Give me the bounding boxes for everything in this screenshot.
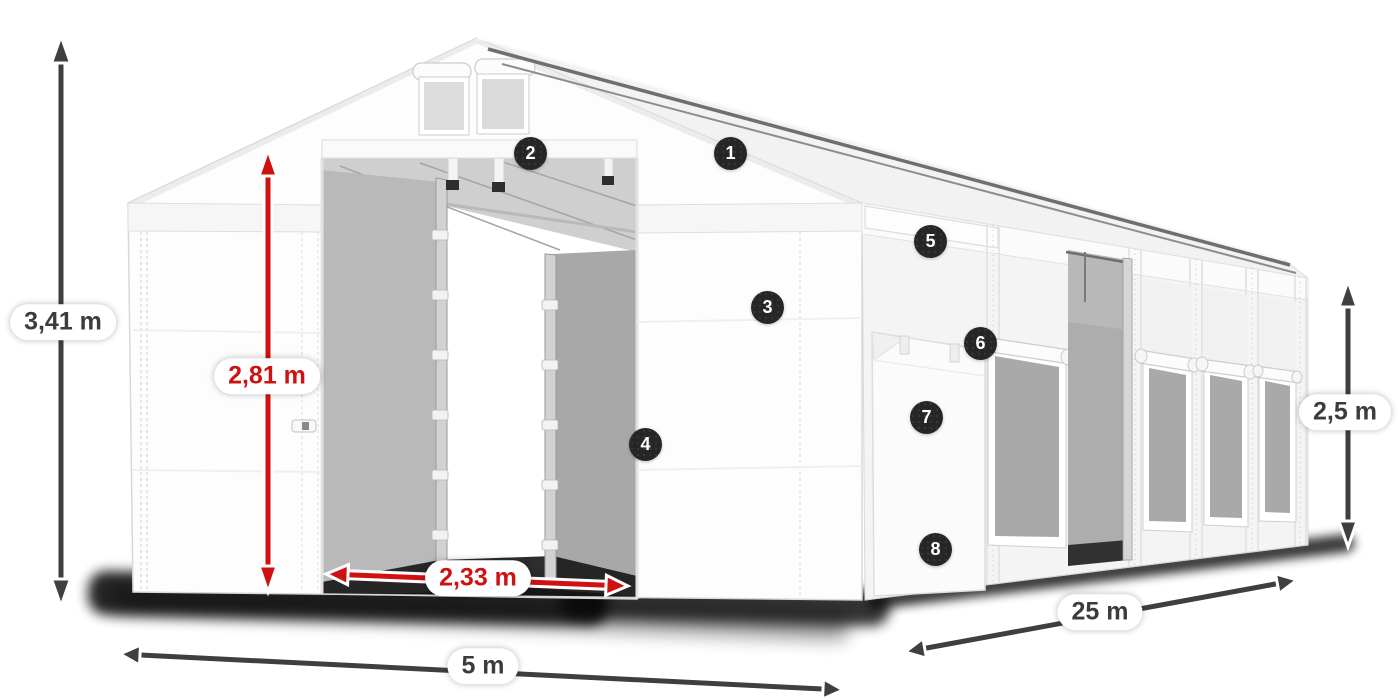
side-window-1 <box>979 336 1075 548</box>
gable-vent-window-left <box>413 63 471 135</box>
side-window-3 <box>1196 288 1256 527</box>
strap-buckle-icon <box>602 176 614 185</box>
dimension-label-front-width: 5 m <box>447 648 518 684</box>
window-mesh <box>1210 375 1242 518</box>
feature-badge-4[interactable]: 4 <box>629 428 662 461</box>
interior-left-panel <box>322 170 440 596</box>
feature-badge-1[interactable]: 1 <box>714 137 747 170</box>
dimension-label-side-length: 25 m <box>1058 594 1143 630</box>
doorway-pole <box>1123 258 1132 560</box>
feature-badge-7[interactable]: 7 <box>910 401 943 434</box>
side-window-4 <box>1253 296 1302 522</box>
feature-badge-8[interactable]: 8 <box>919 533 952 566</box>
window-mesh <box>1265 381 1290 513</box>
side-window-2 <box>1135 278 1200 532</box>
window-mesh <box>995 356 1059 537</box>
dimension-label-entrance-width: 2,33 m <box>425 560 531 596</box>
interior-pole-right <box>542 254 558 588</box>
strap-buckle-icon <box>492 182 505 192</box>
dimension-label-total-height: 3,41 m <box>10 304 116 340</box>
feature-badge-2[interactable]: 2 <box>514 137 547 170</box>
entrance-top-beam <box>322 140 637 158</box>
dimension-label-side-height: 2,5 m <box>1299 394 1391 430</box>
interior-right-panel <box>553 250 637 596</box>
feature-badge-3[interactable]: 3 <box>751 291 784 324</box>
side-doorway-opening <box>1066 250 1132 566</box>
feature-badge-5[interactable]: 5 <box>914 225 947 258</box>
feature-badge-6[interactable]: 6 <box>964 327 997 360</box>
tent-dimension-diagram: 3,41 m 2,81 m 2,33 m 5 m 25 m 2,5 m 1 2 … <box>0 0 1400 700</box>
door-handle <box>292 420 316 432</box>
window-mesh <box>1149 368 1186 522</box>
vent-roller <box>475 59 535 76</box>
front-opening-interior <box>322 148 637 599</box>
dimension-label-entrance-height: 2,81 m <box>214 358 320 394</box>
tent-illustration <box>0 0 1400 700</box>
strap-buckle-icon <box>446 180 459 190</box>
